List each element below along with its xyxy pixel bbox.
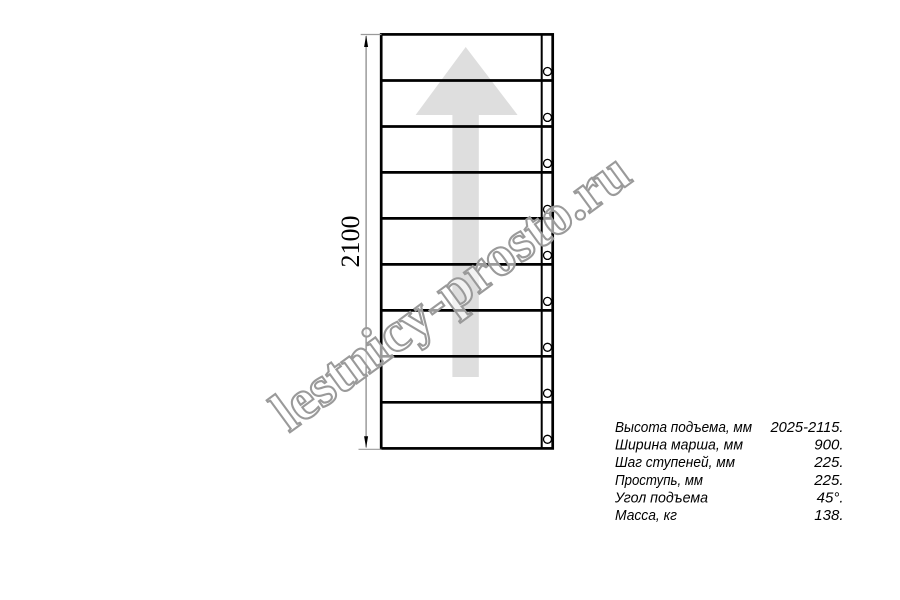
svg-text:Высота подъема, мм: Высота подъема, мм [615,419,752,436]
svg-text:45°.: 45°. [817,489,844,506]
svg-text:Шаг ступеней, мм: Шаг ступеней, мм [615,454,735,471]
svg-text:900.: 900. [814,437,843,454]
svg-text:Ширина марша, мм: Ширина марша, мм [615,437,743,454]
svg-text:Проступь, мм: Проступь, мм [615,472,703,489]
svg-text:138.: 138. [814,507,843,524]
svg-text:225.: 225. [813,454,843,471]
svg-text:Масса, кг: Масса, кг [615,507,678,524]
svg-text:225.: 225. [813,472,843,489]
svg-text:2100: 2100 [336,216,365,268]
svg-text:2025-2115.: 2025-2115. [770,419,844,436]
svg-text:lestnicy-prosto.ru: lestnicy-prosto.ru [259,140,642,444]
svg-text:Угол подъема: Угол подъема [614,489,708,506]
